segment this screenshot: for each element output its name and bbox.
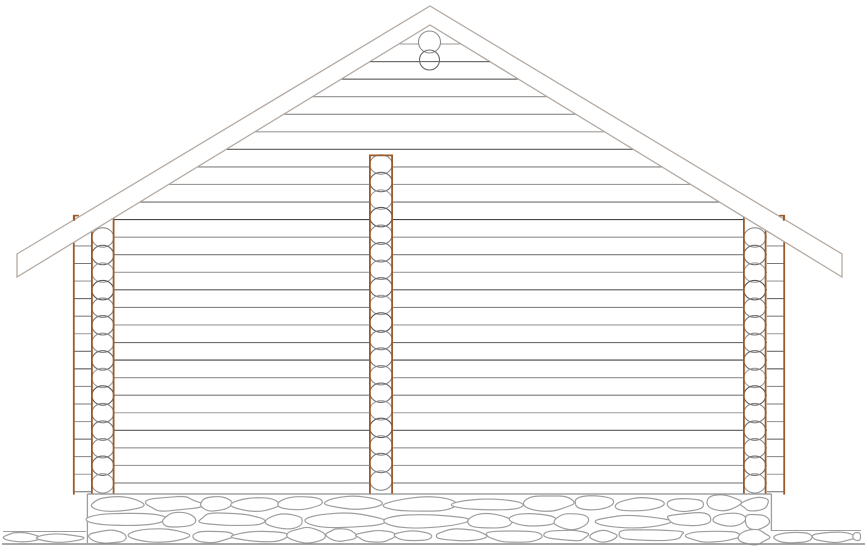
stone	[451, 499, 523, 510]
log-column-middle	[369, 155, 393, 495]
corner-strip-left	[73, 215, 91, 495]
stone	[667, 499, 703, 512]
stone	[509, 514, 556, 526]
strip-face	[767, 222, 785, 494]
stone	[812, 532, 855, 542]
stone-foundation	[86, 494, 771, 545]
log-column-left-corner	[91, 214, 115, 495]
stone	[36, 534, 84, 542]
ground-stones-left	[3, 532, 86, 543]
ground-stones-right	[772, 531, 861, 543]
log-column-right-corner	[743, 214, 767, 495]
stone	[619, 530, 683, 541]
elevation-svg	[0, 0, 868, 548]
stone	[713, 513, 746, 526]
drawing-canvas: Log house gable elevation drawing	[0, 0, 868, 548]
strip-face	[73, 222, 91, 494]
stone	[575, 496, 613, 510]
wall-face	[73, 25, 785, 494]
stone	[3, 532, 40, 541]
stone	[774, 532, 812, 542]
stone	[86, 513, 167, 525]
stone	[667, 513, 710, 526]
gable-wall	[73, 25, 785, 494]
stone	[853, 533, 861, 541]
corner-strip-right	[767, 215, 785, 495]
stone	[394, 531, 431, 541]
